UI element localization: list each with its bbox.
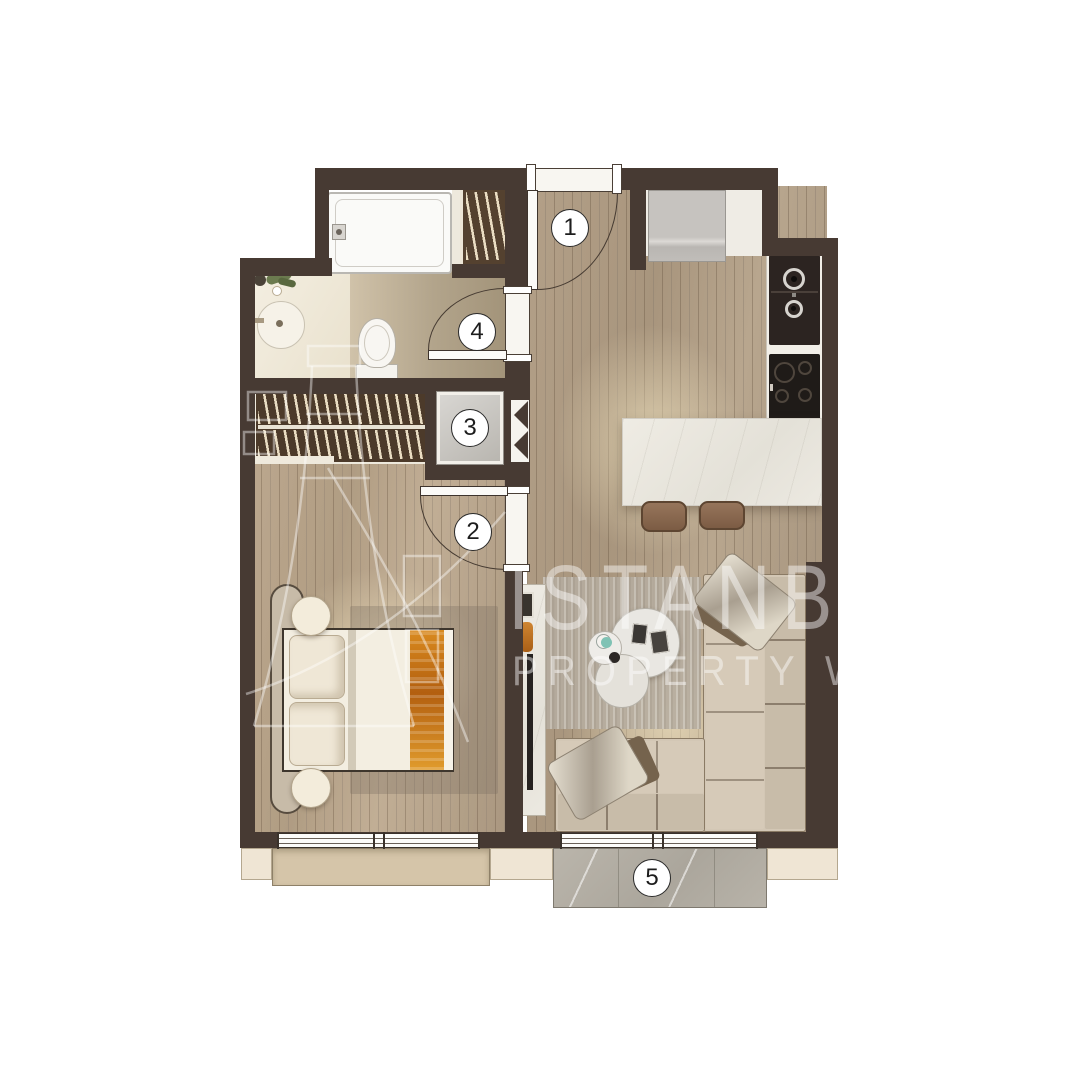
bed-pillow bbox=[289, 702, 345, 766]
wardrobe-hangers-icon bbox=[258, 430, 426, 459]
toilet-seat bbox=[364, 325, 390, 361]
wall-right-kitchen bbox=[822, 238, 838, 578]
sink-drain-dot bbox=[791, 276, 797, 282]
nightstand bbox=[291, 596, 331, 636]
cooktop-control-tick bbox=[770, 384, 773, 391]
kitchen-sink-unit bbox=[769, 255, 820, 345]
burner-icon bbox=[798, 361, 812, 375]
badge-bedroom-door: 2 bbox=[454, 513, 492, 551]
burner-icon bbox=[798, 388, 812, 402]
wall-top-right bbox=[620, 168, 778, 190]
watermark-line2: PROPERTY W bbox=[512, 650, 872, 692]
wall-entry-stub bbox=[630, 190, 646, 270]
entrance-door-leaf bbox=[527, 190, 538, 290]
bedroom-wardrobe bbox=[254, 390, 430, 464]
bar-stool bbox=[641, 501, 687, 532]
closet-shelf-strip bbox=[452, 190, 460, 264]
window-mullion bbox=[662, 832, 664, 849]
window-mullion bbox=[383, 832, 385, 849]
window-mullion bbox=[373, 832, 375, 849]
badge-utility-cabinet: 3 bbox=[451, 409, 489, 447]
exterior-ledge bbox=[241, 848, 272, 880]
sink-knob-dot bbox=[792, 293, 796, 297]
exterior-ledge bbox=[490, 848, 553, 880]
wardrobe-shelf-line bbox=[258, 425, 426, 429]
window-frame-line bbox=[277, 843, 480, 844]
living-room-window bbox=[560, 833, 758, 848]
balcony-tile-joint bbox=[618, 849, 619, 907]
watermark-line1: ISTANB bbox=[508, 552, 844, 644]
wardrobe-shelf-strip bbox=[256, 456, 334, 463]
nightstand bbox=[291, 768, 331, 808]
door-jamb bbox=[503, 354, 532, 362]
bed-pillow bbox=[289, 635, 345, 699]
kitchen-island bbox=[622, 418, 822, 506]
bed-foot-fold bbox=[444, 630, 453, 770]
duvet-fold-line bbox=[348, 630, 356, 770]
appliance bbox=[648, 190, 726, 262]
window-frame-line bbox=[560, 843, 758, 844]
wall-top-left bbox=[315, 168, 528, 190]
door-jamb bbox=[503, 286, 532, 294]
bed-throw-runner bbox=[410, 630, 444, 770]
window-mullion bbox=[756, 832, 758, 849]
bathtub-inner bbox=[335, 199, 444, 267]
shaft-symbol bbox=[511, 400, 529, 462]
window-mullion bbox=[652, 832, 654, 849]
window-mullion bbox=[277, 832, 279, 849]
bar-stool bbox=[699, 501, 745, 530]
sink-drain bbox=[276, 320, 283, 327]
cooktop bbox=[769, 354, 820, 420]
bathtub-drain bbox=[336, 229, 342, 235]
badge-entrance-door: 1 bbox=[551, 209, 589, 247]
bedroom-door-leaf bbox=[420, 486, 508, 496]
bathroom-door-leaf bbox=[428, 350, 507, 360]
burner-icon bbox=[775, 389, 789, 403]
badge-bathroom-door: 4 bbox=[458, 313, 496, 351]
wardrobe-hangers-icon bbox=[258, 394, 426, 424]
floor-plan-canvas: ISTANB PROPERTY W 1 2 3 4 5 bbox=[0, 0, 1080, 1080]
bed bbox=[282, 628, 454, 772]
burner-icon bbox=[774, 362, 795, 383]
window-mullion bbox=[478, 832, 480, 849]
bedroom-window-planter bbox=[272, 848, 490, 886]
badge-balcony: 5 bbox=[633, 859, 671, 897]
soap-dish-icon bbox=[272, 286, 282, 296]
wall-right-upper bbox=[762, 168, 778, 248]
entrance-door-opening bbox=[528, 168, 620, 192]
door-jamb bbox=[612, 164, 622, 194]
shaft-zigzag-icon bbox=[511, 400, 529, 462]
window-frame-line bbox=[277, 838, 480, 839]
wall-divider-bath-lower bbox=[505, 360, 530, 382]
balcony-tile-joint bbox=[714, 849, 715, 907]
bathroom-door-opening bbox=[505, 292, 530, 360]
sink-drain-dot bbox=[791, 306, 796, 311]
window-frame-line bbox=[560, 838, 758, 839]
wall-closet-under bbox=[452, 264, 514, 278]
exterior-ledge bbox=[767, 848, 838, 880]
window-mullion bbox=[560, 832, 562, 849]
wall-left bbox=[240, 258, 255, 848]
bedroom-window bbox=[277, 833, 480, 848]
